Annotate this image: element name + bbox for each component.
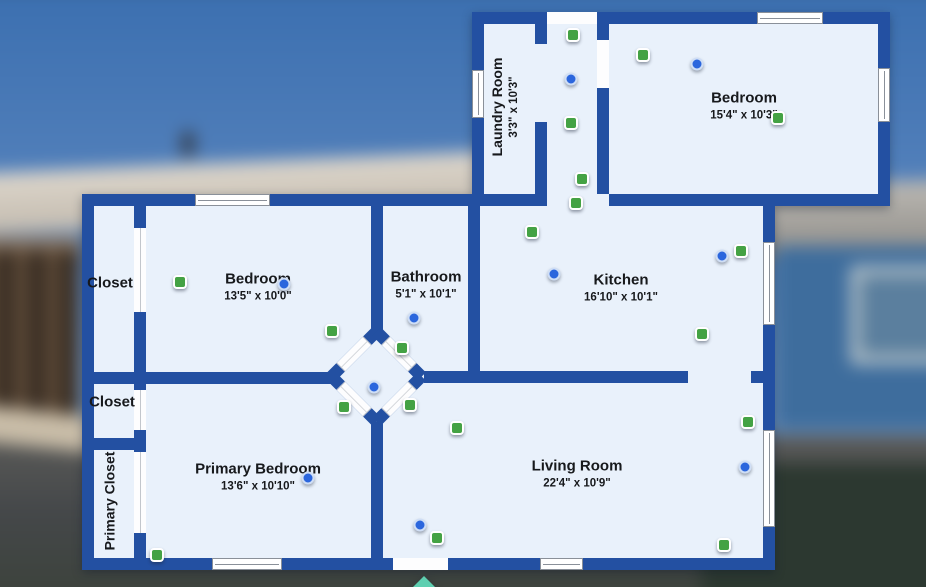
capture-point-blue-icon[interactable] [302, 472, 315, 485]
window [472, 70, 484, 118]
door-opening [597, 40, 609, 88]
room-dimensions: 13'5" x 10'0" [224, 289, 292, 303]
capture-point-green-icon[interactable] [173, 275, 187, 289]
room-name: Closet [89, 394, 135, 413]
wall [82, 372, 335, 384]
capture-point-green-icon[interactable] [150, 548, 164, 562]
wall [468, 206, 480, 371]
room-name: Living Room [532, 457, 623, 476]
window [757, 12, 823, 24]
capture-point-green-icon[interactable] [569, 196, 583, 210]
room-dimensions: 15'4" x 10'3" [710, 108, 778, 122]
wall [371, 422, 383, 558]
room-dimensions: 22'4" x 10'9" [532, 476, 623, 490]
wall [424, 371, 688, 383]
capture-point-blue-icon[interactable] [691, 58, 704, 71]
camera-position-icon [413, 576, 435, 587]
wall [472, 12, 890, 24]
window [878, 68, 890, 122]
room-label-laundry-room: Laundry Room3'3" x 10'3" [489, 58, 521, 157]
capture-point-blue-icon[interactable] [548, 268, 561, 281]
room-name: Bathroom [391, 268, 462, 287]
closet-door [134, 228, 146, 312]
capture-point-blue-icon[interactable] [565, 73, 578, 86]
capture-point-green-icon[interactable] [771, 111, 785, 125]
wall [751, 371, 775, 383]
capture-point-blue-icon[interactable] [368, 381, 381, 394]
wall [134, 206, 146, 228]
window [763, 242, 775, 325]
wall [371, 206, 383, 332]
capture-point-green-icon[interactable] [636, 48, 650, 62]
capture-point-blue-icon[interactable] [739, 461, 752, 474]
capture-point-green-icon[interactable] [575, 172, 589, 186]
door-opening [393, 558, 448, 570]
capture-point-green-icon[interactable] [564, 116, 578, 130]
room-name: Closet [87, 275, 133, 294]
capture-point-green-icon[interactable] [741, 415, 755, 429]
window [763, 430, 775, 527]
closet-door [134, 452, 146, 533]
room-name: Laundry Room [489, 58, 507, 157]
floor-plan: Laundry Room3'3" x 10'3"Bedroom15'4" x 1… [0, 0, 926, 587]
wall [535, 122, 547, 194]
capture-point-blue-icon[interactable] [278, 278, 291, 291]
door-opening [547, 12, 597, 24]
room-label-bathroom: Bathroom5'1" x 10'1" [391, 268, 462, 301]
room-label-closet-1: Closet [87, 275, 133, 294]
capture-point-green-icon[interactable] [566, 28, 580, 42]
room-name: Kitchen [584, 271, 658, 290]
room-label-primary-closet: Primary Closet [101, 452, 119, 551]
closet-door [134, 390, 146, 430]
capture-point-green-icon[interactable] [734, 244, 748, 258]
room-dimensions: 5'1" x 10'1" [391, 287, 462, 301]
capture-point-green-icon[interactable] [430, 531, 444, 545]
room-label-bedroom-top: Bedroom15'4" x 10'3" [710, 89, 778, 122]
capture-point-blue-icon[interactable] [408, 312, 421, 325]
capture-point-blue-icon[interactable] [414, 519, 427, 532]
room-label-living-room: Living Room22'4" x 10'9" [532, 457, 623, 490]
capture-point-green-icon[interactable] [403, 398, 417, 412]
capture-point-green-icon[interactable] [525, 225, 539, 239]
window [540, 558, 583, 570]
room-label-closet-2: Closet [89, 394, 135, 413]
room-name: Primary Closet [101, 452, 119, 551]
capture-point-green-icon[interactable] [395, 341, 409, 355]
wall [82, 438, 146, 450]
capture-point-blue-icon[interactable] [716, 250, 729, 263]
wall [609, 194, 890, 206]
wall [134, 533, 146, 558]
room-dimensions: 3'3" x 10'3" [507, 58, 521, 157]
capture-point-green-icon[interactable] [325, 324, 339, 338]
window [195, 194, 270, 206]
room-label-kitchen: Kitchen16'10" x 10'1" [584, 271, 658, 304]
room-dimensions: 16'10" x 10'1" [584, 290, 658, 304]
window [212, 558, 282, 570]
room-name: Bedroom [710, 89, 778, 108]
wall [82, 194, 547, 206]
capture-point-green-icon[interactable] [695, 327, 709, 341]
capture-point-green-icon[interactable] [337, 400, 351, 414]
capture-point-green-icon[interactable] [717, 538, 731, 552]
capture-point-green-icon[interactable] [450, 421, 464, 435]
floor-plan-screen: Laundry Room3'3" x 10'3"Bedroom15'4" x 1… [0, 0, 926, 587]
wall [535, 24, 547, 44]
